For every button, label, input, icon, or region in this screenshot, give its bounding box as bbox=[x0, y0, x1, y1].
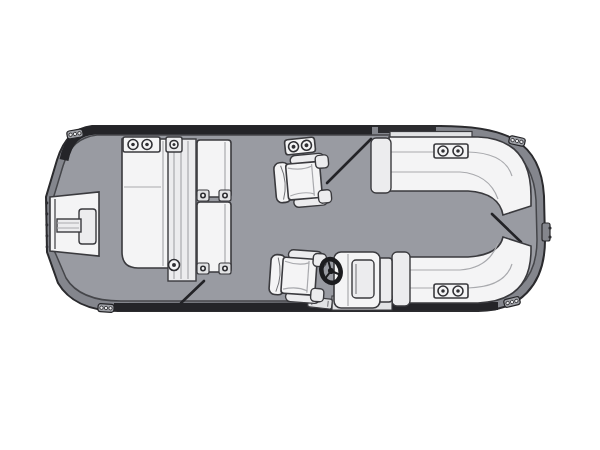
port-lounge-group bbox=[122, 137, 231, 281]
gate-hinge-latch bbox=[284, 137, 315, 155]
bottom-rail-band bbox=[114, 306, 498, 307]
armrest bbox=[371, 138, 391, 193]
page-background bbox=[0, 0, 600, 450]
stern-ladder-tab bbox=[542, 223, 552, 241]
pontoon-floorplan-diagram bbox=[0, 0, 600, 450]
port-bench-seat bbox=[197, 140, 231, 197]
cup-holders bbox=[434, 144, 468, 158]
bow-gate bbox=[46, 192, 99, 256]
armrest bbox=[392, 252, 410, 306]
cup-holders bbox=[434, 284, 468, 298]
port-bench-seat bbox=[197, 202, 231, 272]
cleat-icon bbox=[98, 304, 114, 313]
